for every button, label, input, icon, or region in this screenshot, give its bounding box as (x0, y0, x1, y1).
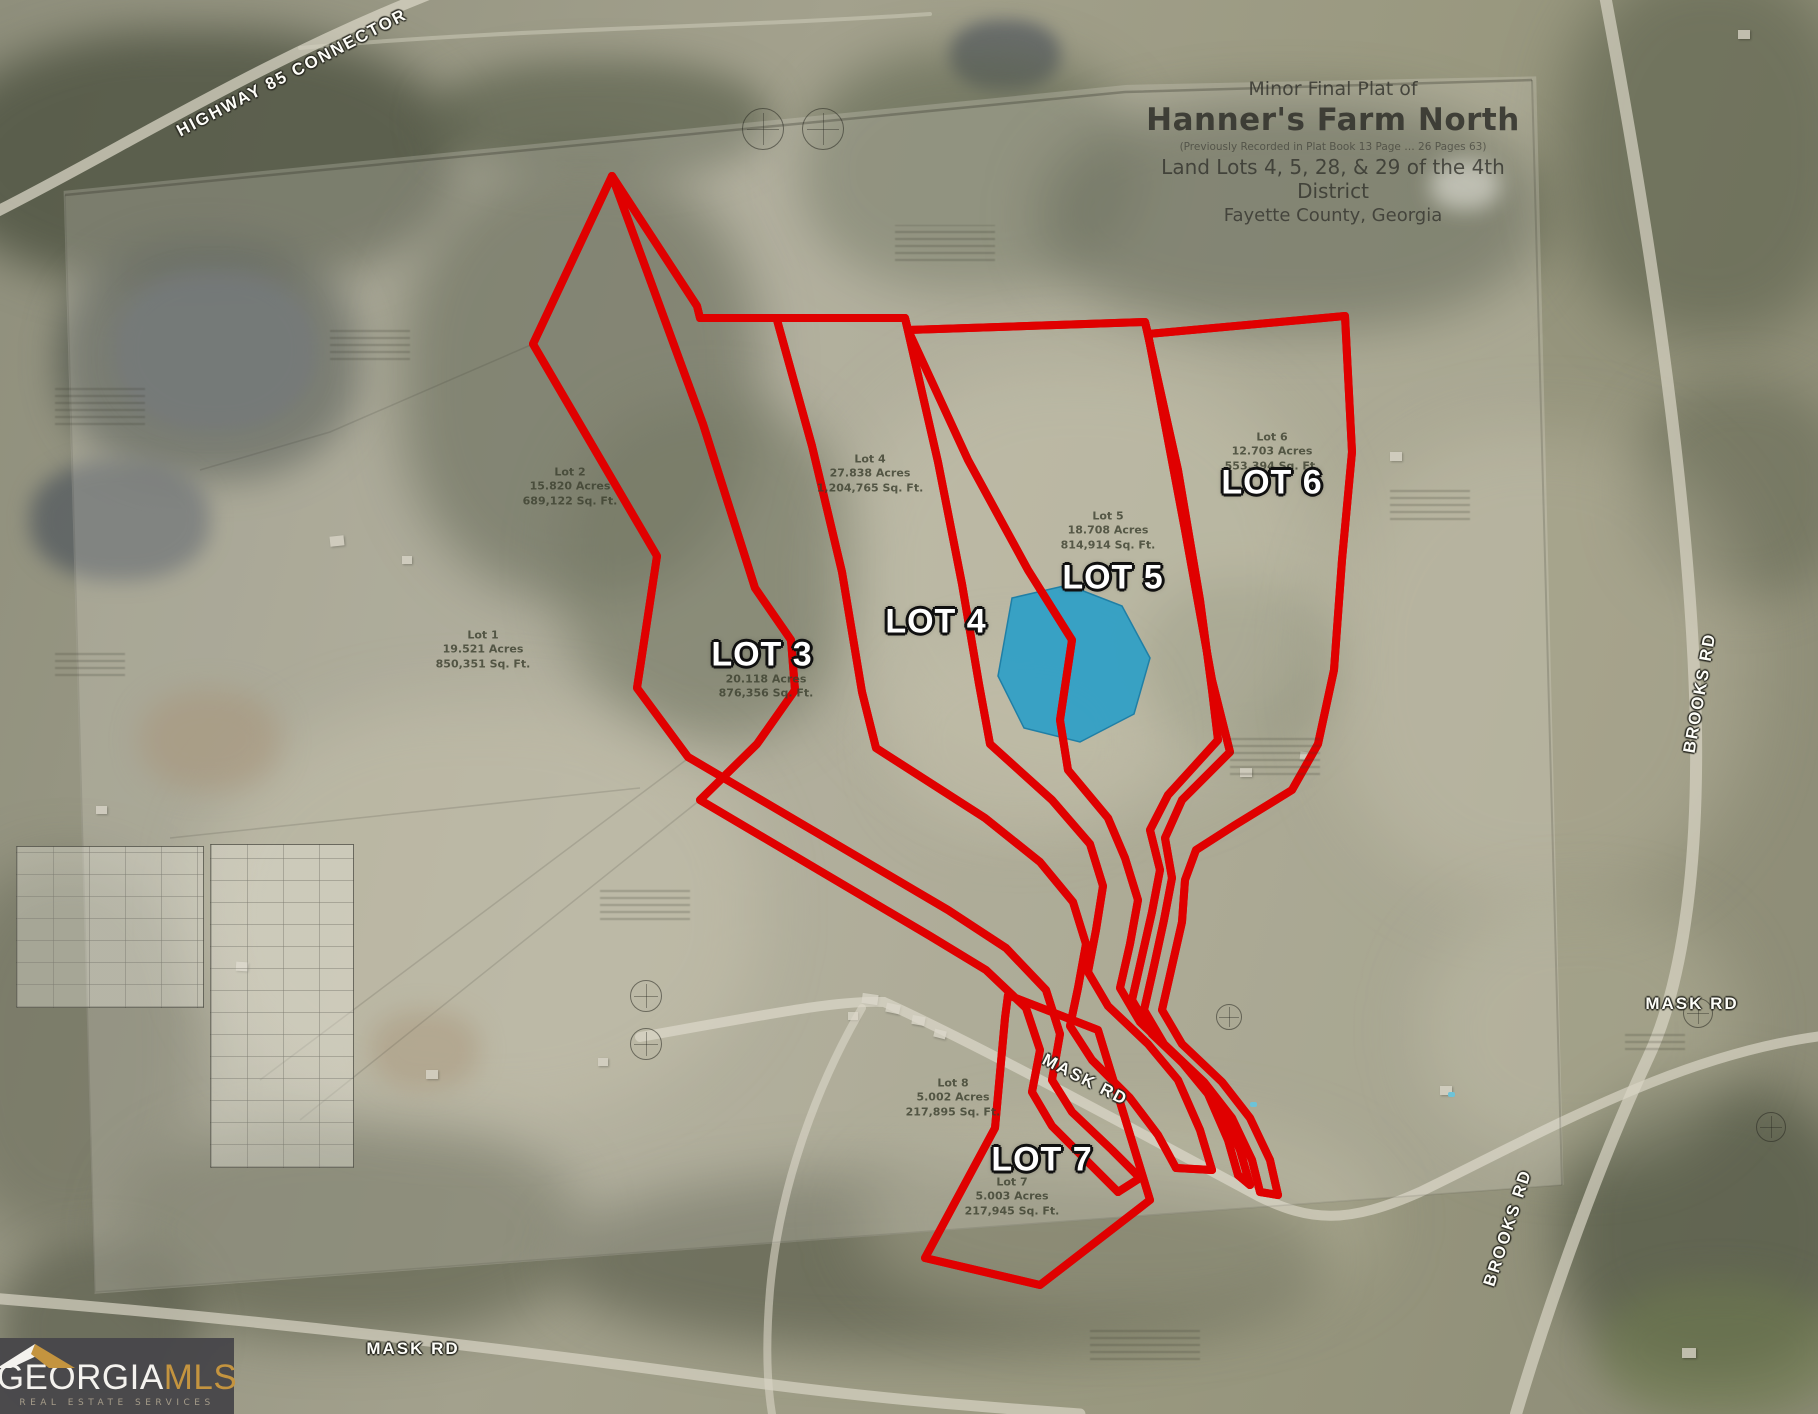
plat-lot-detail-lot2: Lot 215.820 Acres689,122 Sq. Ft. (523, 466, 618, 509)
line-table (210, 844, 354, 1168)
lot-overlay-label-4: LOT 4 (885, 603, 986, 642)
illegible-plat-note (55, 650, 125, 676)
illegible-plat-note (55, 385, 145, 425)
logo-roof-icon (0, 1344, 75, 1368)
illegible-plat-note (1230, 735, 1320, 775)
lot-overlay-label-5: LOT 5 (1062, 559, 1163, 598)
logo-mls-text: MLS (164, 1360, 237, 1395)
lot4-boundary-west (777, 320, 1176, 1168)
curve-table (16, 846, 204, 1008)
land-lot-circle-marker (630, 1028, 662, 1060)
plat-lot-detail-lot8: Lot 85.002 Acres217,895 Sq. Ft. (906, 1077, 1001, 1120)
aerial-plat-map: Minor Final Plat of Hanner's Farm North … (0, 0, 1818, 1414)
illegible-plat-note (895, 225, 995, 261)
plat-title-block: Minor Final Plat of Hanner's Farm North … (1128, 78, 1538, 226)
plat-title-kicker: Minor Final Plat of (1128, 78, 1538, 100)
land-lot-circle-marker (802, 108, 844, 150)
survey-line-east-boundary (1532, 80, 1562, 1185)
plat-title-name: Hanner's Farm North (1128, 102, 1538, 138)
illegible-plat-note (600, 890, 690, 920)
lot-overlay-label-3: LOT 3 (711, 636, 812, 675)
illegible-plat-note (330, 330, 410, 360)
land-lot-circle-marker (1216, 1004, 1242, 1030)
plat-lot-detail-lot1: Lot 119.521 Acres850,351 Sq. Ft. (436, 629, 531, 672)
illegible-plat-note (1625, 1030, 1685, 1050)
plat-title-land-lots: Land Lots 4, 5, 28, & 29 of the 4th Dist… (1128, 155, 1538, 203)
pond-highlight (998, 585, 1150, 742)
plat-lot-detail-lot4: Lot 427.838 Acres1,204,765 Sq. Ft. (817, 453, 924, 496)
road-label-mask-rd-bottom: MASK RD (366, 1339, 459, 1359)
plat-title-recording-note: (Previously Recorded in Plat Book 13 Pag… (1128, 141, 1538, 153)
plat-linework-layer (0, 0, 1818, 1414)
plat-lot-detail-lot7: Lot 75.003 Acres217,945 Sq. Ft. (965, 1176, 1060, 1219)
illegible-plat-note (1390, 490, 1470, 520)
plat-title-county: Fayette County, Georgia (1128, 205, 1538, 226)
georgia-mls-logo: GEORGIAMLS REAL ESTATE SERVICES (0, 1338, 234, 1414)
lot-overlay-label-6: LOT 6 (1221, 464, 1322, 503)
plat-lot-detail-lot3: 20.118 Acres876,356 Sq. Ft. (719, 673, 814, 702)
land-lot-circle-marker (1756, 1112, 1786, 1142)
land-lot-circle-marker (742, 108, 784, 150)
lot-overlay-label-7: LOT 7 (991, 1141, 1092, 1180)
illegible-plat-note (1090, 1330, 1200, 1360)
road-label-mask-rd-right: MASK RD (1645, 994, 1738, 1014)
logo-tagline: REAL ESTATE SERVICES (19, 1398, 214, 1408)
land-lot-circle-marker (630, 980, 662, 1012)
plat-lot-detail-lot5: Lot 518.708 Acres814,914 Sq. Ft. (1061, 510, 1156, 553)
